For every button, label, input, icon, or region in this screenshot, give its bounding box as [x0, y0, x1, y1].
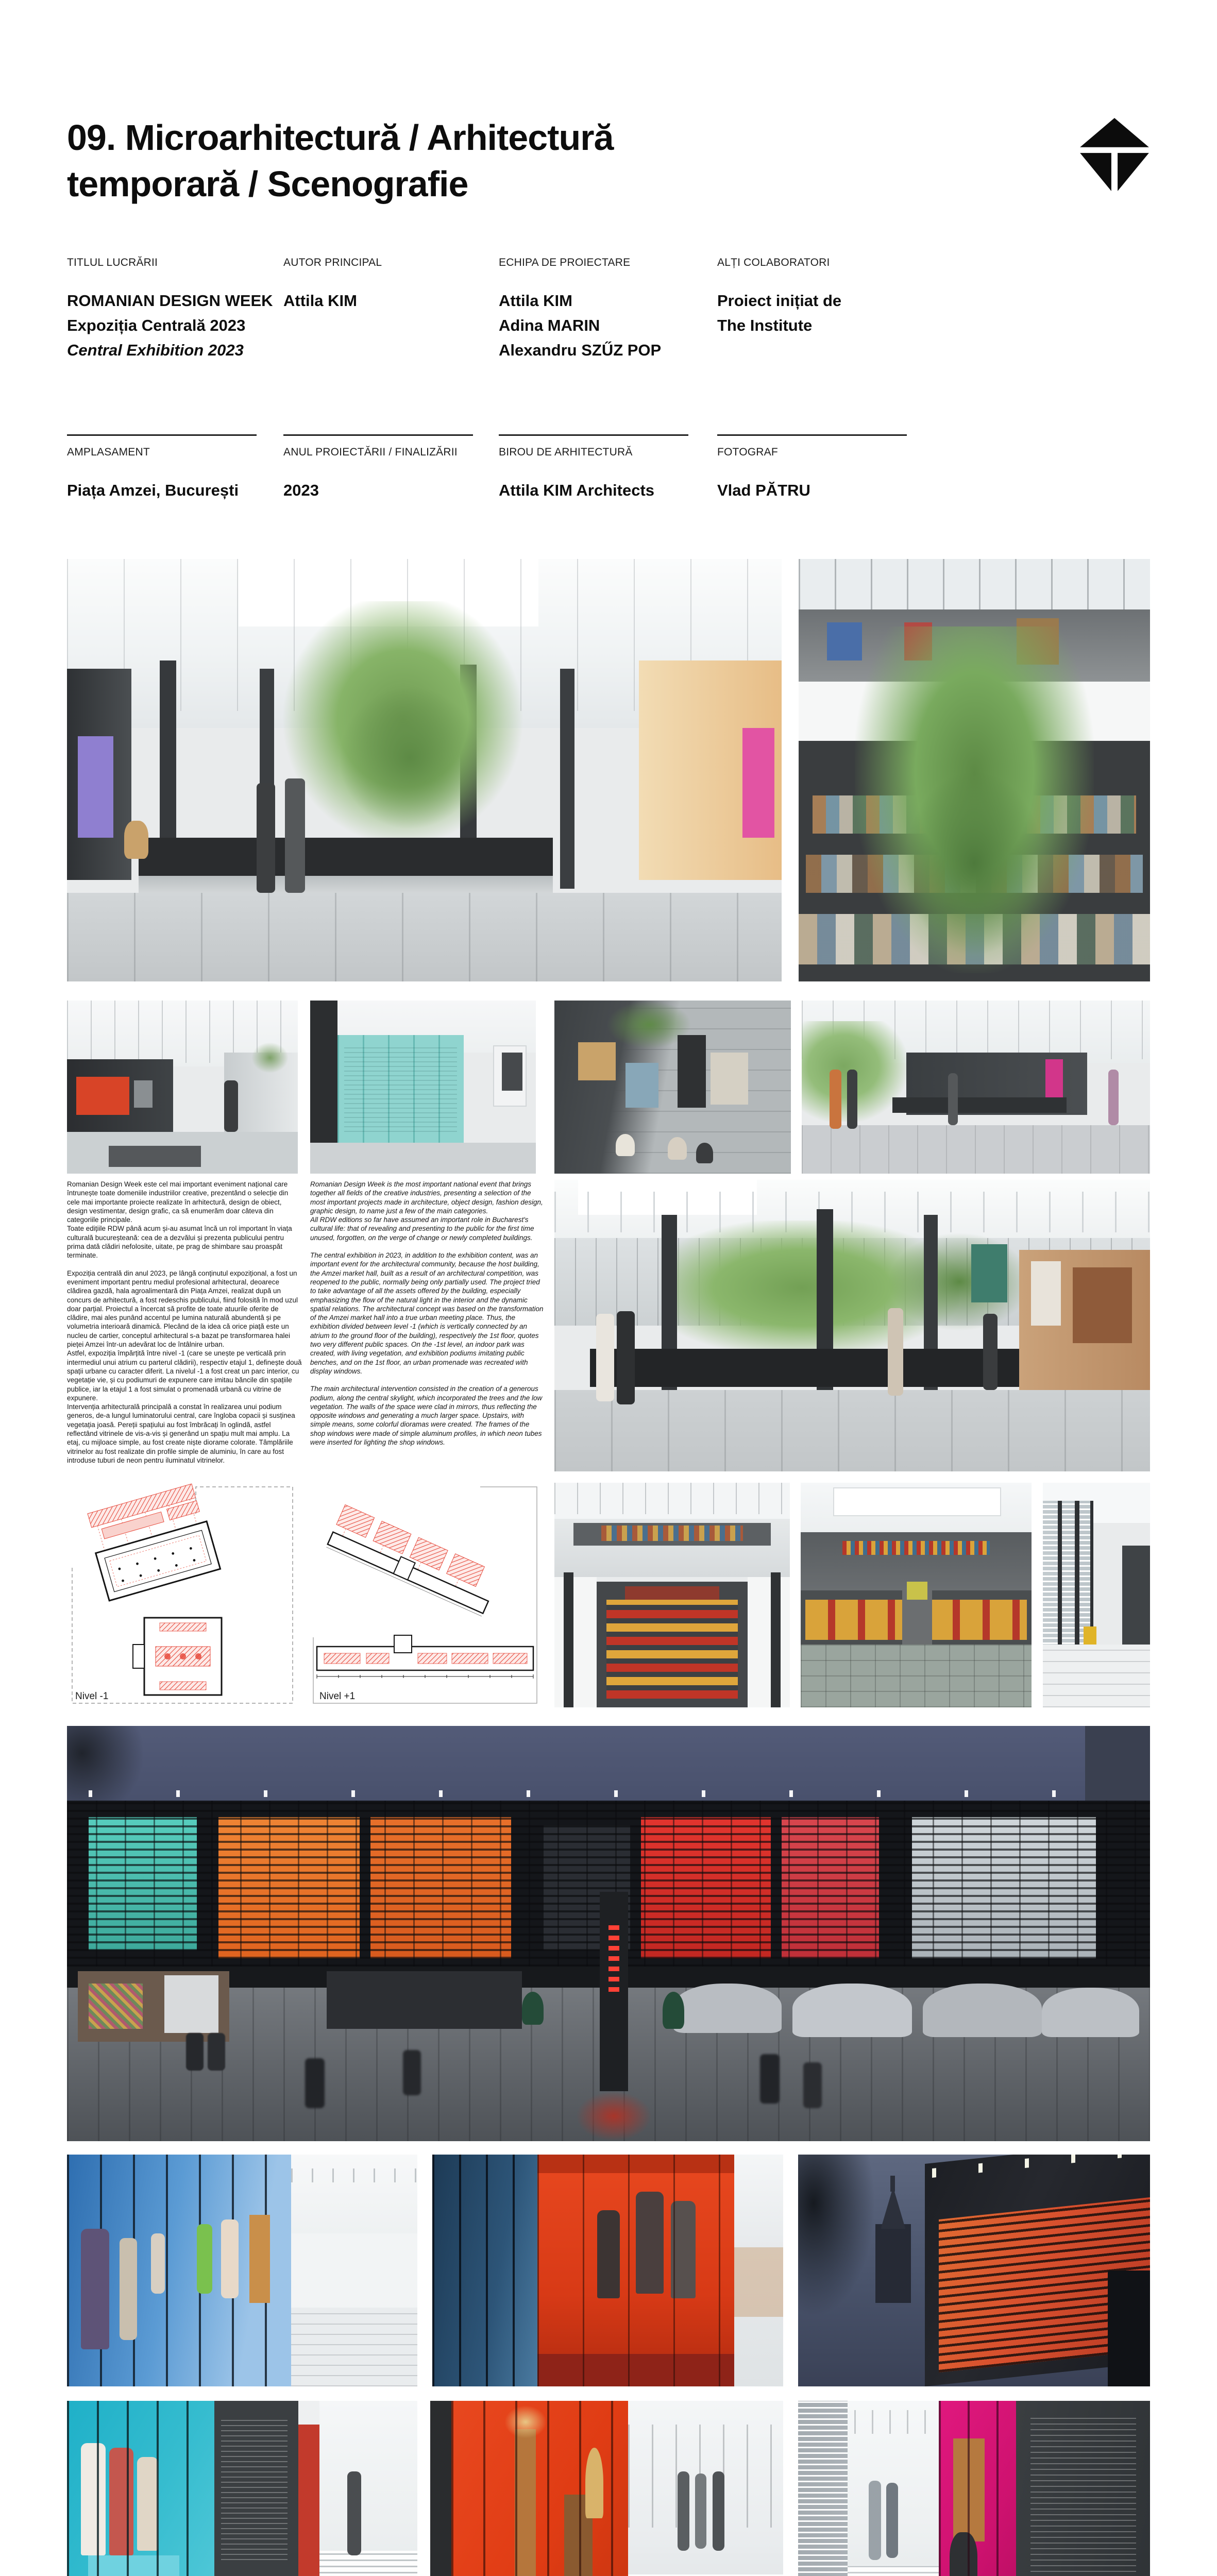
- photo-exhibition-overhead-people: [554, 1001, 791, 1174]
- label-amplasament: AMPLASAMENT: [67, 446, 150, 459]
- value-autor-principal: Attila KIM: [283, 289, 357, 313]
- work-title-line1: ROMANIAN DESIGN WEEK: [67, 289, 273, 313]
- divider: [283, 434, 473, 436]
- en-paragraph-1: Romanian Design Week is the most importa…: [310, 1180, 545, 1215]
- photo-market-hall-interior-tree: [67, 559, 782, 981]
- photo-red-shopwindow-corridor: [432, 2155, 783, 2386]
- drawing-axonometric-nivel-plus-1: Nivel +1: [309, 1483, 541, 1707]
- collaborator-line1: Proiect inițiat de: [717, 289, 841, 313]
- value-echipa-proiectare: Attila KIM Adina MARIN Alexandru SZŰZ PO…: [499, 289, 661, 363]
- divider: [717, 434, 907, 436]
- ro-paragraph-4: Astfel, expoziția împărțită între nivel …: [67, 1349, 302, 1402]
- label-autor-principal: AUTOR PRINCIPAL: [283, 257, 382, 269]
- en-paragraph-3: The central exhibition in 2023, in addit…: [310, 1251, 545, 1376]
- ro-paragraph-1: Romanian Design Week este cel mai import…: [67, 1180, 302, 1224]
- ro-paragraph-2: Toate edițiile RDW până acum și-au asuma…: [67, 1224, 302, 1260]
- page-title-line2: temporară / Scenografie: [67, 161, 613, 207]
- label-birou-arhitectura: BIROU DE ARHITECTURĂ: [499, 446, 633, 459]
- value-birou-arhitectura: Attila KIM Architects: [499, 478, 654, 503]
- diamond-logo-icon: [1078, 117, 1151, 196]
- ro-paragraph-3: Expoziția centrală din anul 2023, pe lân…: [67, 1269, 302, 1349]
- photo-dusk-facade-church-tower: [798, 2155, 1150, 2386]
- photo-blue-shopwindow-corridor: [67, 2155, 417, 2386]
- team-member-3: Alexandru SZŰZ POP: [499, 338, 661, 363]
- label-titlul-lucrarii: TITLUL LUCRĂRII: [67, 257, 158, 269]
- photo-market-interior-counters: [801, 1483, 1032, 1707]
- divider: [499, 434, 688, 436]
- value-anul-proiectarii: 2023: [283, 478, 319, 503]
- en-paragraph-2: All RDW editions so far have assumed an …: [310, 1215, 545, 1242]
- text-english: Romanian Design Week is the most importa…: [310, 1180, 545, 1476]
- poster-board: 09. Microarhitectură / Arhitectură tempo…: [0, 0, 1217, 2576]
- value-alti-colaboratori: Proiect inițiat de The Institute: [717, 289, 841, 338]
- label-alti-colaboratori: ALȚI COLABORATORI: [717, 257, 830, 269]
- work-title-line3: Central Exhibition 2023: [67, 338, 273, 363]
- photo-market-atrium-counters: [554, 1483, 790, 1707]
- label-echipa-proiectare: ECHIPA DE PROIECTARE: [499, 257, 630, 269]
- photo-exhibition-hall-people: [554, 1180, 1150, 1471]
- author-name: Attila KIM: [283, 289, 357, 313]
- value-titlul-lucrarii: ROMANIAN DESIGN WEEK Expoziția Centrală …: [67, 289, 273, 363]
- work-title-line2: Expoziția Centrală 2023: [67, 313, 273, 338]
- photo-night-facade-amzei-market: [67, 1726, 1150, 2141]
- photo-atrium-overhead-tree: [799, 559, 1150, 981]
- team-member-2: Adina MARIN: [499, 313, 661, 338]
- label-anul-proiectarii: ANUL PROIECTĂRII / FINALIZĂRII: [283, 446, 458, 459]
- photo-white-corridor-lightwall: [1043, 1483, 1150, 1707]
- team-member-1: Attila KIM: [499, 289, 661, 313]
- photo-corridor-red-poster: [67, 1001, 298, 1174]
- photo-cyan-display-case: [67, 2401, 417, 2576]
- photo-promenade-mannequins-plants: [802, 1001, 1150, 1174]
- photo-orange-display-case: [430, 2401, 783, 2576]
- value-fotograf: Vlad PĂTRU: [717, 478, 810, 503]
- en-paragraph-4: The main architectural intervention cons…: [310, 1384, 545, 1447]
- drawing-axonometric-nivel-minus-1: Nivel -1: [67, 1483, 297, 1707]
- collaborator-line2: The Institute: [717, 313, 841, 338]
- plan-label-nivel-minus-1: Nivel -1: [75, 1691, 108, 1702]
- photo-pink-display-text-wall: [798, 2401, 1150, 2576]
- label-fotograf: FOTOGRAF: [717, 446, 778, 459]
- page-title: 09. Microarhitectură / Arhitectură tempo…: [67, 114, 613, 207]
- text-romanian: Romanian Design Week este cel mai import…: [67, 1180, 302, 1476]
- divider: [67, 434, 257, 436]
- value-amplasament: Piața Amzei, București: [67, 478, 239, 503]
- page-title-line1: 09. Microarhitectură / Arhitectură: [67, 114, 613, 161]
- ro-paragraph-5: Intervenția arhitecturală principală a c…: [67, 1402, 302, 1465]
- plan-label-nivel-plus-1: Nivel +1: [319, 1691, 355, 1702]
- photo-teal-info-panels: [310, 1001, 536, 1174]
